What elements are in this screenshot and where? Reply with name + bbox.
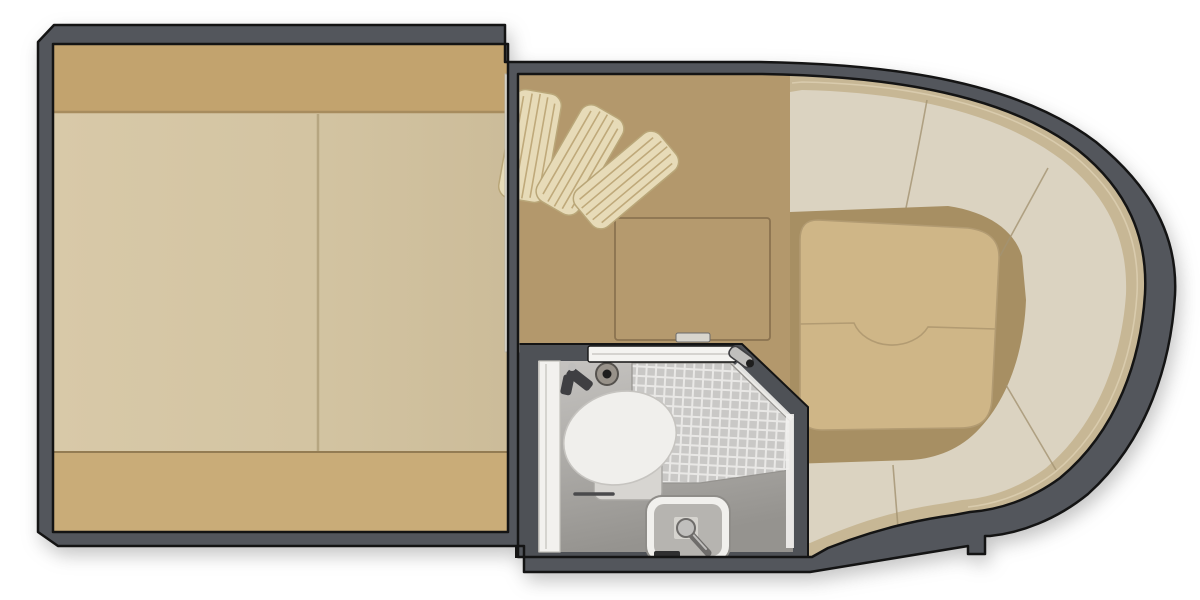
bow-filler-cushion xyxy=(800,220,999,430)
faucet-base xyxy=(677,519,695,537)
hatch-latch xyxy=(676,333,710,342)
bed-foot-bench xyxy=(53,452,508,532)
shower-valve xyxy=(596,363,618,385)
floor-plan-canvas xyxy=(0,0,1200,600)
berth-cabin xyxy=(53,44,508,532)
valve-center xyxy=(603,370,612,379)
shower-side-trim xyxy=(786,414,794,548)
boat-floor-plan xyxy=(0,0,1200,600)
hull-group xyxy=(38,25,1175,572)
bed-pillow-bolster xyxy=(53,44,508,112)
head-compartment xyxy=(516,344,808,562)
hinge-cap xyxy=(568,363,576,371)
pocket-door-panel xyxy=(539,361,560,552)
bed-mattress xyxy=(53,112,508,452)
floor-hatch xyxy=(615,218,770,340)
